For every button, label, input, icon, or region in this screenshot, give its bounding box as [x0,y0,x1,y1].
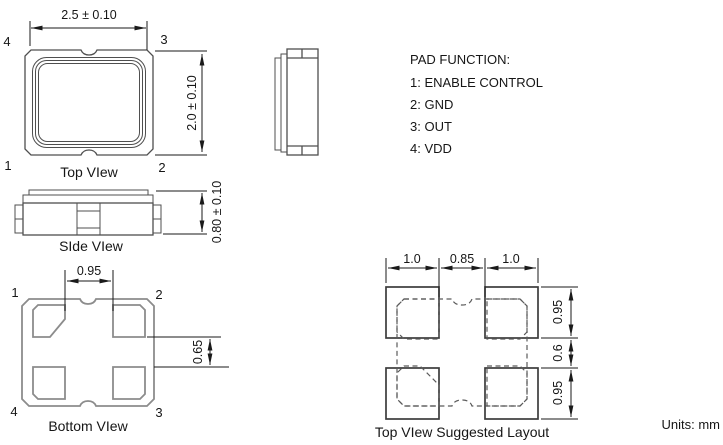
side-view-dimension-lines [156,191,207,234]
top-view-pin-2: 2 [158,160,165,175]
top-view-pin-4: 4 [3,34,10,49]
pad-function-line-1: 1: ENABLE CONTROL [410,75,543,90]
bottom-view-pad-2 [113,305,145,337]
bottom-view-pad-1 [33,305,65,337]
layout-component-pads-dashed [397,299,527,406]
side-view-lid [23,195,153,203]
top-view-width-dim: 2.5 ± 0.10 [61,8,117,22]
package-dimensions-svg: 2.5 ± 0.10 2.0 ± 0.10 4 3 1 2 Top VIew P… [0,0,723,445]
end-view-lid-inner [281,54,287,152]
side-view-lid-top [29,190,148,195]
bottom-view-pin-1: 1 [11,285,18,300]
top-view-pin-3: 3 [160,32,167,47]
layout-dim-gap-h: 0.85 [450,252,474,266]
end-view-body [287,49,318,155]
pad-function-title: PAD FUNCTION: [410,52,510,67]
bottom-view-pin-3: 3 [155,405,162,420]
suggested-layout-drawing: 1.0 0.85 1.0 0.95 0.6 0.95 Top VIew Sugg… [375,252,578,440]
suggested-layout-caption: Top VIew Suggested Layout [375,424,549,440]
layout-pad-bottom-left [386,368,439,419]
layout-dim-pad-h-bottom: 0.95 [551,381,565,405]
bottom-view-outline [22,299,154,406]
top-view-lid-seams [33,58,146,148]
layout-pad-bottom-right [485,368,538,419]
bottom-view-pin-4: 4 [10,404,17,419]
side-view-caption: SIde VIew [59,238,124,254]
top-view-height-dim: 2.0 ± 0.10 [185,75,199,131]
layout-dim-pad-w-left: 1.0 [403,252,420,266]
top-view-outline [25,50,153,155]
end-view-lid-outer [275,58,281,150]
top-view-drawing: 2.5 ± 0.10 2.0 ± 0.10 4 3 1 2 Top VIew [3,8,207,180]
datasheet-mechanical-drawing: 2.5 ± 0.10 2.0 ± 0.10 4 3 1 2 Top VIew P… [0,0,723,445]
layout-dim-pad-h-top: 0.95 [551,300,565,324]
end-view-drawing [275,49,318,155]
top-view-caption: Top VIew [60,164,118,180]
units-label: Units: mm [662,417,721,432]
layout-dim-gap-v: 0.6 [551,344,565,361]
pad-function-line-3: 3: OUT [410,119,452,134]
top-view-dimension-lines [30,21,207,155]
bottom-view-pad-4 [33,367,65,399]
side-view-height-dim: 0.80 ± 0.10 [210,181,224,244]
top-view-pin-1: 1 [4,158,11,173]
pad-function-line-2: 2: GND [410,97,453,112]
pad-function-line-4: 4: VDD [410,141,452,156]
side-view-center-seam [77,203,100,235]
bottom-view-pad-gap-h-dim: 0.95 [77,264,101,278]
pad-function-legend: PAD FUNCTION: 1: ENABLE CONTROL 2: GND 3… [410,52,543,156]
layout-pad-top-left [386,287,439,338]
side-view-drawing: 0.80 ± 0.10 SIde VIew [15,181,224,254]
bottom-view-caption: Bottom VIew [48,418,128,434]
bottom-view-pin-2: 2 [155,287,162,302]
layout-pad-top-right [485,287,538,338]
layout-solid-pads [386,287,538,419]
side-view-body [23,203,153,235]
layout-component-outline-dashed [397,299,527,406]
bottom-view-pad-3 [113,367,145,399]
bottom-view-drawing: 0.95 0.65 1 2 4 3 Bottom VIew [10,264,229,434]
layout-pin1-marker-dashed [397,366,439,406]
layout-dim-pad-w-right: 1.0 [502,252,519,266]
bottom-view-pad-gap-v-dim: 0.65 [191,340,205,364]
